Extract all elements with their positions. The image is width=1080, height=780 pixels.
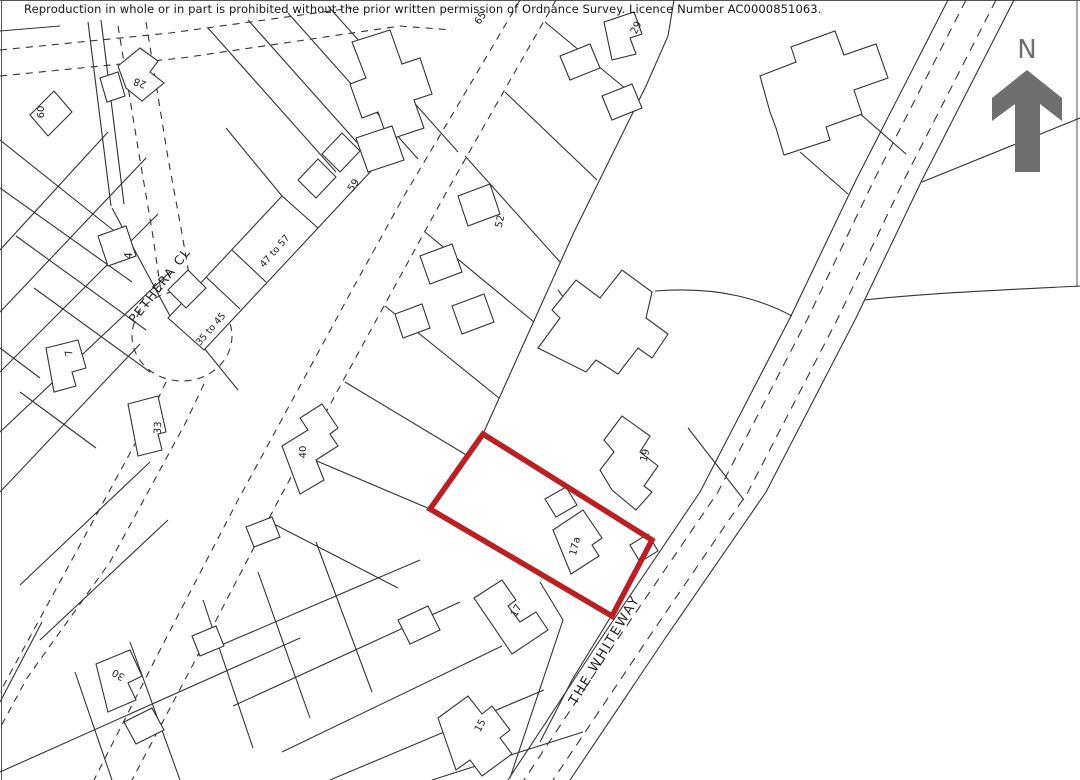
map-label-house-59: 59 [346,177,362,194]
north-label: N [1017,35,1036,65]
map-label-house-60: 60 [36,106,47,119]
north-arrow: N [992,35,1062,172]
site-plan-page: Reproduction in whole or in part is proh… [0,0,1080,780]
north-arrow-icon [992,70,1062,172]
road-unnamed-lane [94,0,556,780]
map-label-house-33: 33 [153,421,164,434]
map-label-house-4: 4 [122,252,136,260]
map-label-house-40: 40 [298,446,309,459]
buildings [30,12,888,776]
map-label-house-52: 52 [494,214,507,229]
site-plan-map: N PETHERA CLTHE WHITEWAY6028447 to 5735 … [0,0,1080,780]
road-the-whiteway [508,0,1014,780]
map-frame [0,0,1080,780]
map-labels-layer: PETHERA CLTHE WHITEWAY6028447 to 5735 to… [36,10,652,734]
parcel-boundaries [0,0,1080,780]
road-pethera-close [0,22,232,728]
copyright-notice: Reproduction in whole or in part is proh… [24,2,821,16]
